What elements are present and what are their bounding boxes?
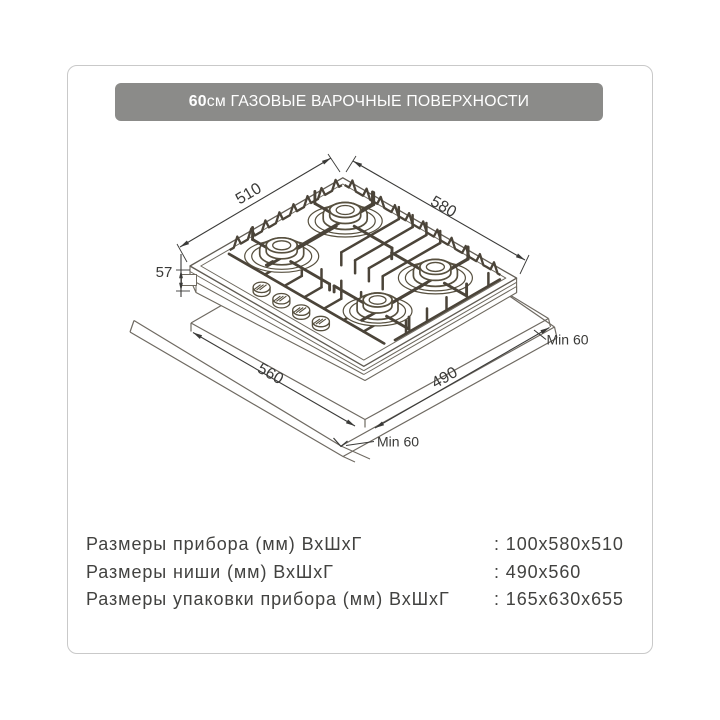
svg-text:580: 580 <box>427 193 459 221</box>
svg-text:510: 510 <box>233 180 265 208</box>
svg-text:57: 57 <box>156 264 173 281</box>
svg-text:Min 60: Min 60 <box>547 332 589 348</box>
svg-text:Min 60: Min 60 <box>377 434 419 450</box>
